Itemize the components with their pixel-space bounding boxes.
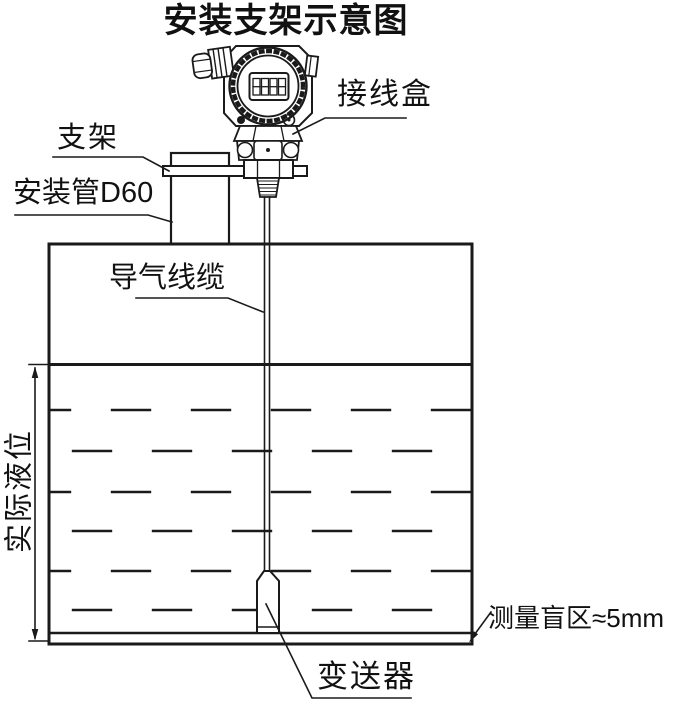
label-mounting-pipe: 安装管D60: [13, 179, 153, 208]
bolt-flange: [237, 141, 299, 160]
label-actual-level: 实际液位: [6, 429, 35, 553]
leader-air-cable: [136, 298, 263, 312]
air-cable: [265, 197, 270, 572]
installation-diagram: 安装支架示意图 接线盒 支架 安装管D60 导气线缆 实际液位 测量盲区≈5mm…: [0, 0, 700, 708]
label-blind-zone: 测量盲区≈5mm: [488, 605, 664, 631]
cable-gland-icon: [191, 47, 234, 81]
neck: [234, 126, 302, 141]
leader-bracket: [53, 157, 169, 171]
leader-mounting-pipe: [15, 215, 172, 222]
side-tab: [305, 55, 318, 76]
label-transmitter: 变送器: [317, 661, 416, 692]
lcd-display: [250, 73, 289, 100]
hex-nut: [244, 160, 293, 178]
indicator-dot: [237, 116, 245, 124]
label-bracket: 支架: [57, 124, 119, 153]
page-title: 安装支架示意图: [145, 4, 427, 38]
threaded-stem: [257, 178, 279, 197]
label-air-cable: 导气线缆: [109, 264, 225, 293]
leader-junction-box: [293, 118, 406, 134]
label-junction-box: 接线盒: [337, 80, 433, 110]
